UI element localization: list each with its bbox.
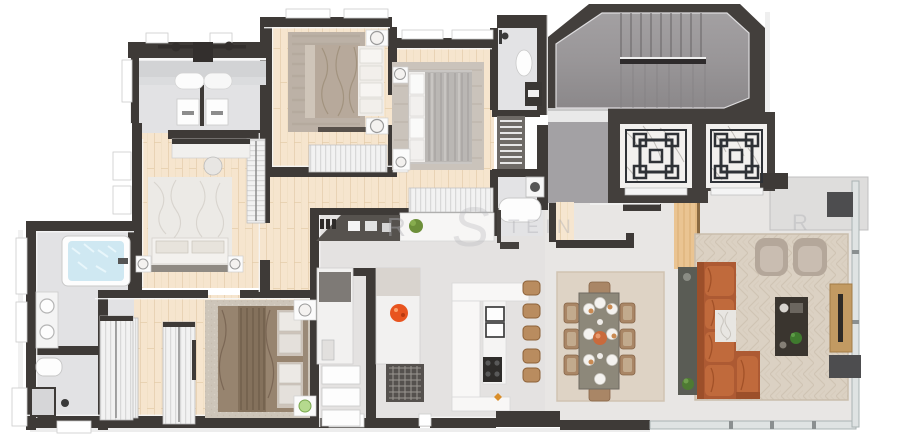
svg-text:S: S	[452, 195, 489, 258]
svg-text:R: R	[387, 212, 406, 242]
svg-text:R: R	[792, 210, 808, 235]
svg-text:TEIN: TEIN	[508, 217, 577, 238]
